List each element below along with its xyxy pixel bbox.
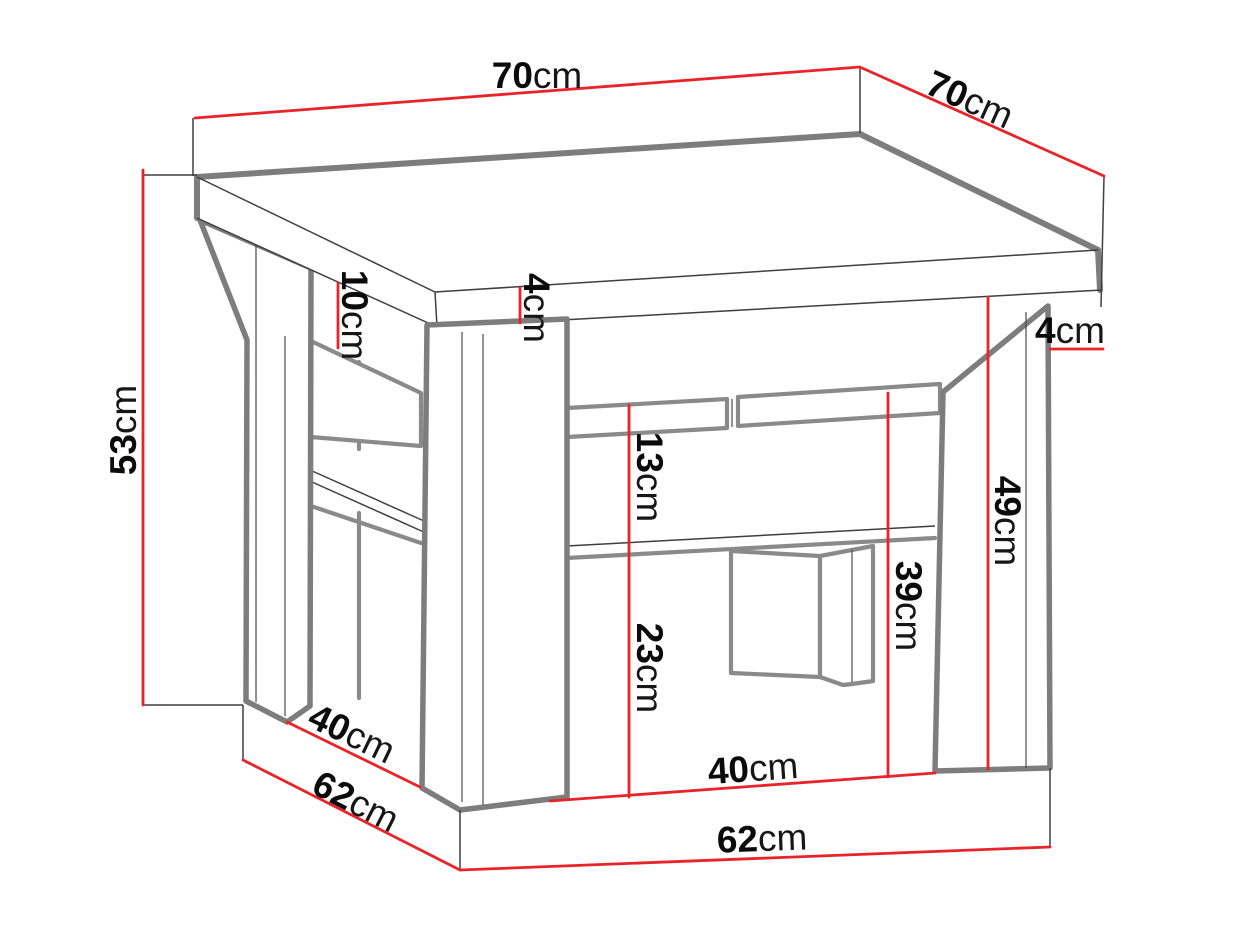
label-top-width: 70cm xyxy=(492,55,582,96)
floor-projection-lines xyxy=(143,705,1050,870)
left-leg xyxy=(200,220,311,722)
label-leg-span-left: 40cm xyxy=(302,695,401,771)
label-shelf-gap: 13cm xyxy=(630,432,671,522)
coffee-table-drawing: 70cm 70cm 53cm 10cm 4cm 4cm 13cm 23cm 39… xyxy=(0,0,1256,942)
label-top-thickness: 4cm xyxy=(517,273,558,343)
label-apron-height: 10cm xyxy=(335,270,376,360)
cross-base-support xyxy=(731,546,873,685)
front-leg xyxy=(422,319,567,810)
label-under-top: 49cm xyxy=(988,476,1029,566)
label-shelf-height: 39cm xyxy=(889,561,930,651)
shelf xyxy=(310,470,935,559)
back-apron-rail-right xyxy=(738,384,940,426)
label-leg-span-front: 40cm xyxy=(706,744,799,791)
label-side-overhang: 4cm xyxy=(1035,310,1105,351)
tabletop xyxy=(197,134,1102,327)
dimension-diagram: 70cm 70cm 53cm 10cm 4cm 4cm 13cm 23cm 39… xyxy=(0,0,1256,942)
label-top-depth: 70cm xyxy=(920,62,1019,136)
label-base-width: 62cm xyxy=(716,816,808,860)
label-total-height: 53cm xyxy=(103,385,144,475)
label-under-shelf: 23cm xyxy=(630,623,671,713)
tabletop-right-corner-edge xyxy=(1098,250,1100,290)
